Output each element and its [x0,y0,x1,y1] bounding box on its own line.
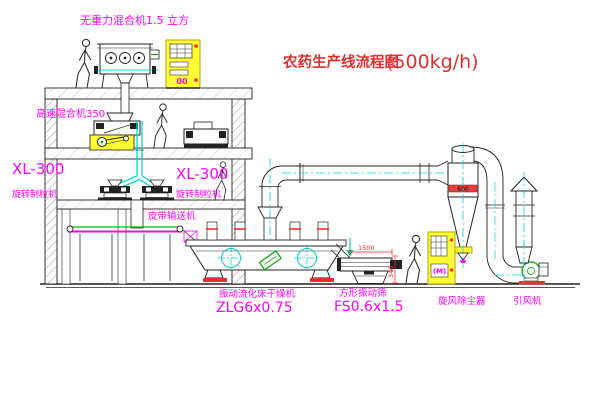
page-title: 农药生产线流程图 [282,53,399,71]
cad-flow-diagram: 00 [0,0,600,403]
sieve-model-label: FS0.6x1.5 [334,299,404,315]
sieve-height-dimension: 340 [387,266,395,278]
granulator-right-model: XL-300 [176,165,228,183]
high-speed-mixer-label: 高速混合机350 [36,107,105,120]
control-cabinet-right: (M) [428,232,455,284]
granulator-discharge-duct [131,200,143,228]
granulator-right-name: 旋转制粒机 [176,188,221,200]
right-panel-display: (M) [433,268,446,276]
indicator-light [450,238,453,241]
dryer-name-label: 振动流化床干燥机 [219,288,296,300]
dryer-exhaust-duct [258,158,450,242]
second-floor-machine [184,122,228,148]
sieve-name-label: 方形振动筛 [339,287,387,299]
fan-label: 引风机 [513,295,542,307]
indicator-light [450,268,453,271]
induced-draft-fan [519,262,548,285]
top-panel-display: 00 [176,77,188,86]
rotary-granulator-left [98,180,132,201]
indicator-light [194,44,198,48]
cyclone-label: 旋风除尘器 [438,295,486,307]
control-cabinet-top: 00 [166,40,200,88]
person-figure [154,104,167,148]
granulator-left-name: 旋转制粒机 [12,188,57,200]
dryer-model-label: ZLG6x0.75 [216,300,293,316]
indicator-light [194,78,198,82]
belt-conveyor [67,226,197,281]
sieve-width-dimension: 1500 [358,244,375,252]
person-figure [406,235,421,283]
diagram-svg: 00 [0,0,600,403]
granulator-left-model: XL-300 [12,160,64,178]
gravity-mixer-label: 无重力混合机1.5 立方 [80,13,189,27]
gravity-free-mixer [94,44,159,115]
title-capacity: (500kg/h) [386,51,479,73]
person-figure [76,39,91,87]
belt-conveyor-label: 皮带输送机 [148,210,196,222]
vibrating-sieve: 1500 340 [337,244,402,284]
ground-line [40,284,580,288]
